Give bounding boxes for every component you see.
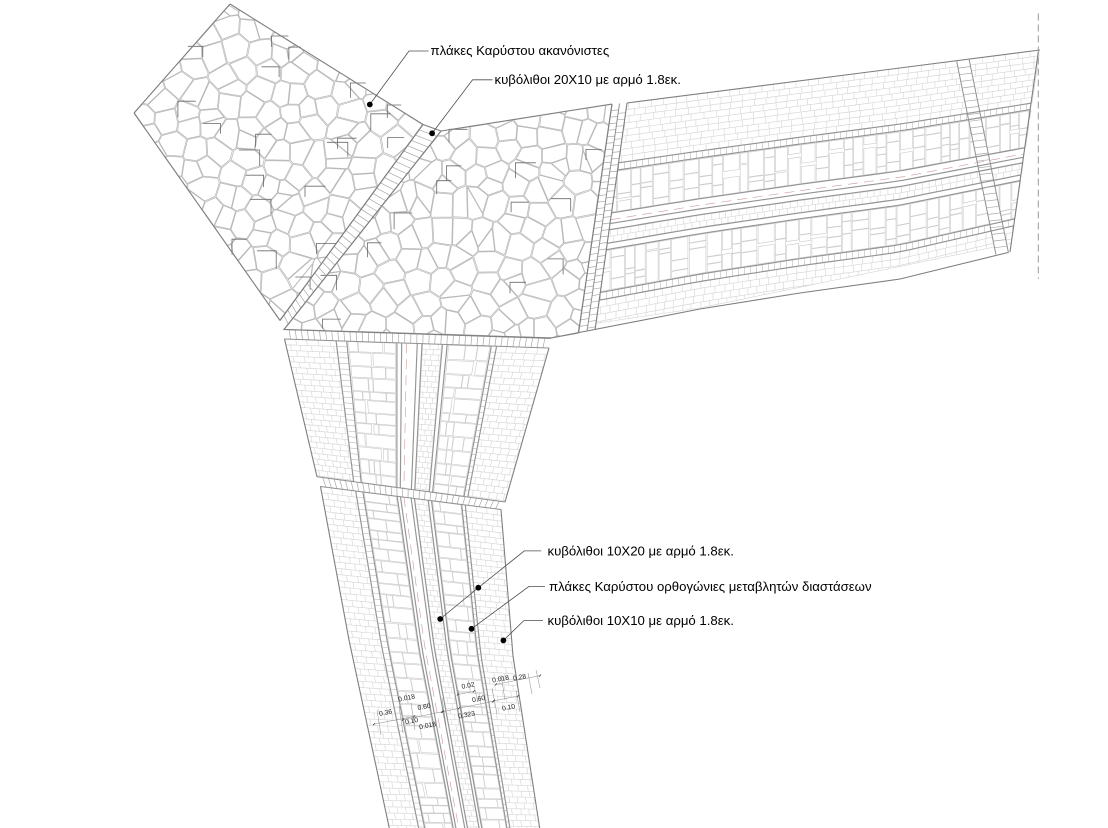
svg-text:πλάκες Καρύστου ακανόνιστες: πλάκες Καρύστου ακανόνιστες <box>431 43 610 58</box>
svg-text:κυβόλιθοι 10X10 με αρμό 1.8εκ.: κυβόλιθοι 10X10 με αρμό 1.8εκ. <box>548 613 734 628</box>
svg-text:κυβόλιθοι 20X10 με αρμό 1.8εκ.: κυβόλιθοι 20X10 με αρμό 1.8εκ. <box>495 72 681 87</box>
svg-text:πλάκες Καρύστου ορθογώνιες μετ: πλάκες Καρύστου ορθογώνιες μεταβλητών δι… <box>549 579 872 594</box>
svg-text:κυβόλιθοι 10X20 με αρμό 1.8εκ.: κυβόλιθοι 10X20 με αρμό 1.8εκ. <box>548 543 734 558</box>
